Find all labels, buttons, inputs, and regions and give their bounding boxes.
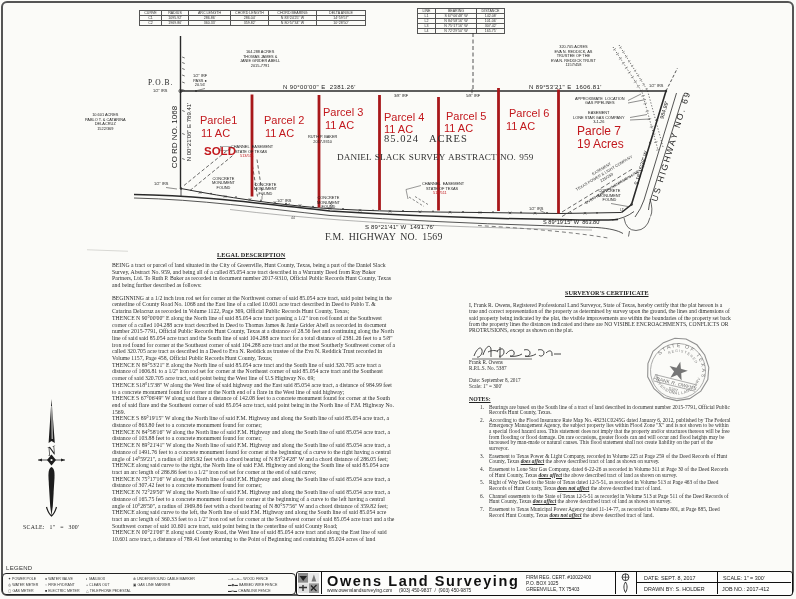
svg-text:STATE OF TEXAS: STATE OF TEXAS	[653, 337, 713, 380]
